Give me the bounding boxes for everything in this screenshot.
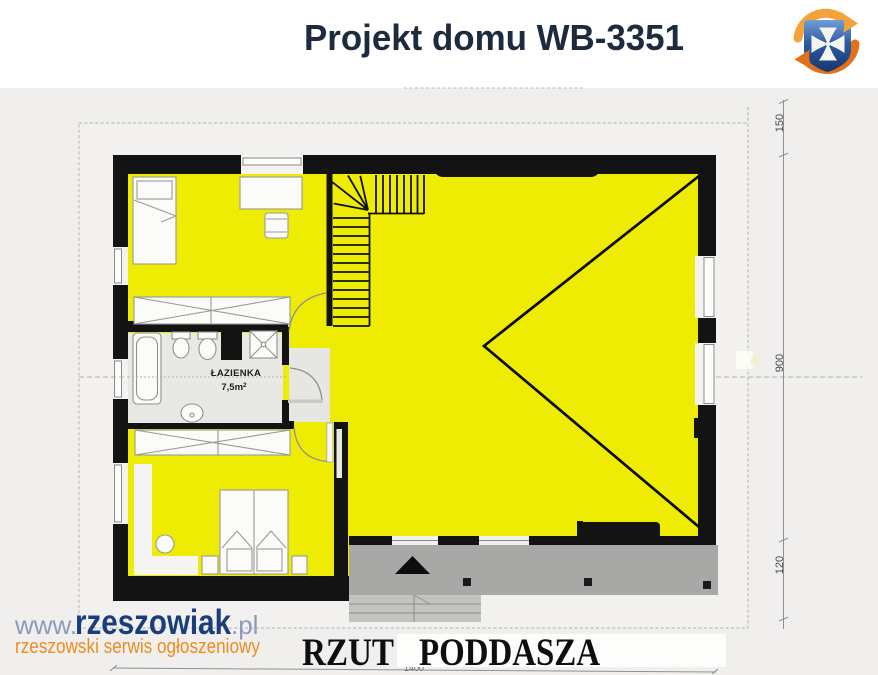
svg-text:RZUT: RZUT <box>302 631 394 674</box>
svg-text:150: 150 <box>774 114 786 132</box>
svg-text:PODDASZA: PODDASZA <box>419 631 600 674</box>
svg-text:120: 120 <box>774 556 786 574</box>
svg-text:rzeszowski serwis ogłoszeniowy: rzeszowski serwis ogłoszeniowy <box>15 636 260 658</box>
svg-text:Projekt domu WB-3351: Projekt domu WB-3351 <box>304 17 684 58</box>
svg-text:ŁAZIENKA: ŁAZIENKA <box>211 368 261 379</box>
svg-text:900: 900 <box>774 354 786 372</box>
